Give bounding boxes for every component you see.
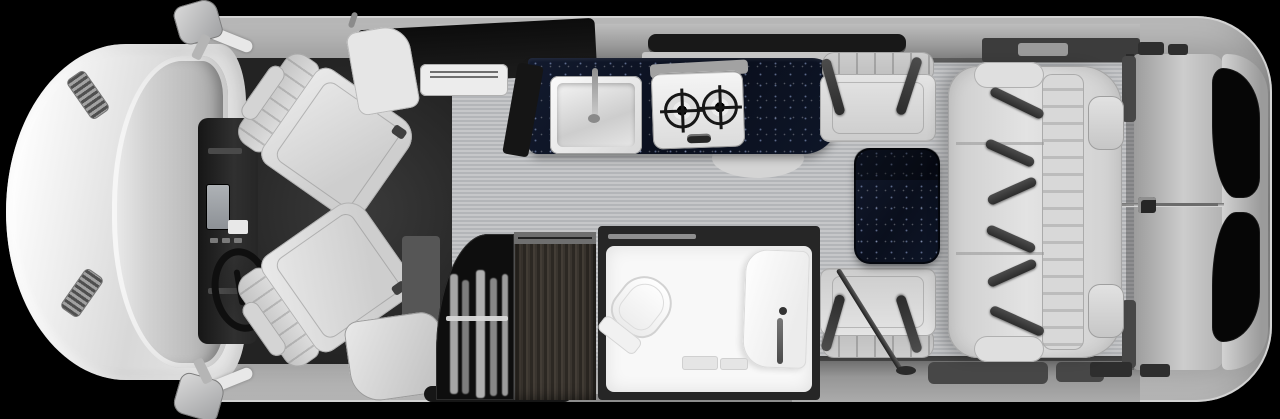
hanging-garment	[462, 280, 469, 394]
rear-wheel-arch	[1122, 300, 1136, 368]
cooktop	[651, 70, 746, 149]
cooktop-handle	[687, 134, 711, 144]
sink-faucet	[592, 68, 598, 120]
floorplan-canvas	[0, 0, 1280, 419]
sink-faucet-spout	[588, 114, 600, 123]
bath-door-rail	[608, 234, 696, 239]
hanging-garment	[450, 274, 458, 394]
rear-vent	[1138, 42, 1164, 55]
dash-vent	[208, 148, 242, 154]
bed-latch-handle	[1138, 197, 1156, 213]
sofa-armrest	[1088, 284, 1124, 338]
rear-vent	[1090, 362, 1132, 377]
galley-window	[648, 34, 906, 54]
dinette-front-seat	[820, 52, 936, 142]
shower-bar	[777, 318, 783, 364]
rear-top-wall-slot	[1018, 43, 1068, 56]
sofa-backrest	[1042, 74, 1084, 350]
bath-item	[682, 356, 718, 370]
burner-right	[701, 89, 738, 126]
shower-control	[779, 307, 787, 315]
hanging-garment	[490, 278, 497, 396]
wood-cabinet	[514, 232, 596, 400]
burner-left	[663, 92, 700, 129]
rear-window-top	[1212, 68, 1260, 198]
sofa-bolster	[974, 62, 1044, 88]
hanging-garment	[502, 274, 508, 396]
rear-vent	[1140, 364, 1170, 377]
dash-button	[210, 238, 218, 243]
dinette-rear-seat	[820, 268, 936, 358]
dinette-table	[854, 148, 940, 264]
rear-vent	[1168, 44, 1188, 55]
dash-button	[234, 238, 242, 243]
bath-item	[720, 358, 748, 370]
wet-bath	[598, 226, 820, 400]
bed-latch-rod	[1156, 203, 1218, 206]
table-pedestal-foot	[896, 366, 916, 375]
sofa-bolster	[974, 336, 1044, 362]
dash-console-box	[228, 220, 248, 234]
rear-wheel-arch	[1122, 56, 1136, 122]
sofa-armrest	[1088, 96, 1124, 150]
shower-column	[742, 249, 810, 369]
floor-mat	[928, 362, 1048, 384]
cabinet-handle	[518, 237, 592, 239]
vent-unit	[420, 64, 508, 96]
hanging-garment	[476, 270, 485, 398]
dash-button	[222, 238, 230, 243]
dash-screen	[206, 184, 230, 230]
